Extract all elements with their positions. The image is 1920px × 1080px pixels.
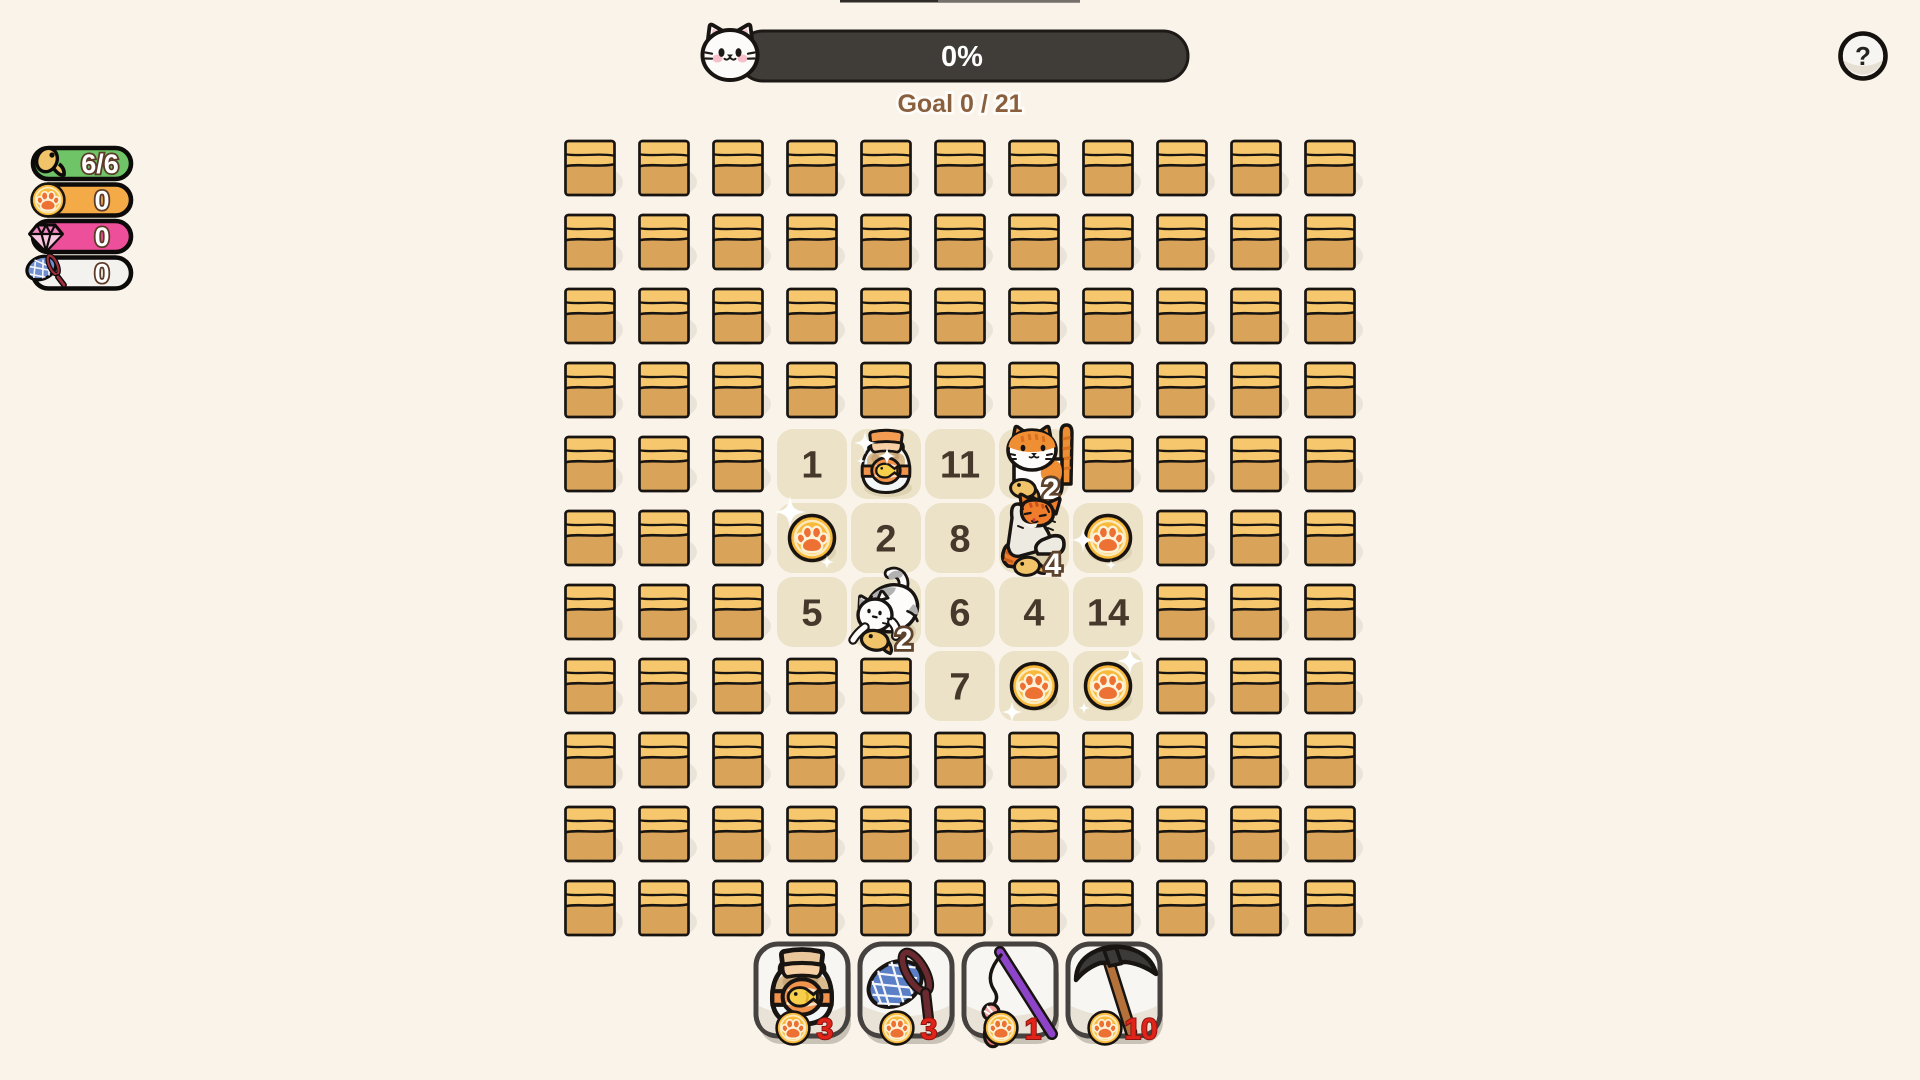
svg-text:5: 5 [801, 593, 822, 635]
svg-text:4: 4 [1045, 548, 1062, 581]
svg-text:1: 1 [801, 445, 822, 487]
svg-text:Goal 0 / 21: Goal 0 / 21 [897, 90, 1022, 118]
svg-text:0: 0 [94, 186, 109, 216]
svg-text:0: 0 [94, 259, 109, 289]
svg-text:0: 0 [94, 222, 109, 252]
svg-text:1: 1 [1025, 1013, 1042, 1046]
svg-text:4: 4 [1023, 593, 1044, 635]
svg-text:11: 11 [940, 445, 980, 487]
svg-text:3: 3 [817, 1013, 834, 1046]
svg-text:14: 14 [1087, 593, 1129, 635]
svg-text:10: 10 [1124, 1013, 1157, 1046]
svg-text:2: 2 [875, 519, 896, 561]
svg-text:6: 6 [949, 593, 970, 635]
svg-text:8: 8 [949, 519, 970, 561]
svg-text:7: 7 [949, 667, 970, 709]
svg-text:?: ? [1855, 41, 1871, 71]
svg-text:0%: 0% [941, 41, 983, 73]
svg-text:2: 2 [896, 623, 913, 656]
svg-text:3: 3 [921, 1013, 938, 1046]
svg-text:6/6: 6/6 [81, 149, 119, 179]
